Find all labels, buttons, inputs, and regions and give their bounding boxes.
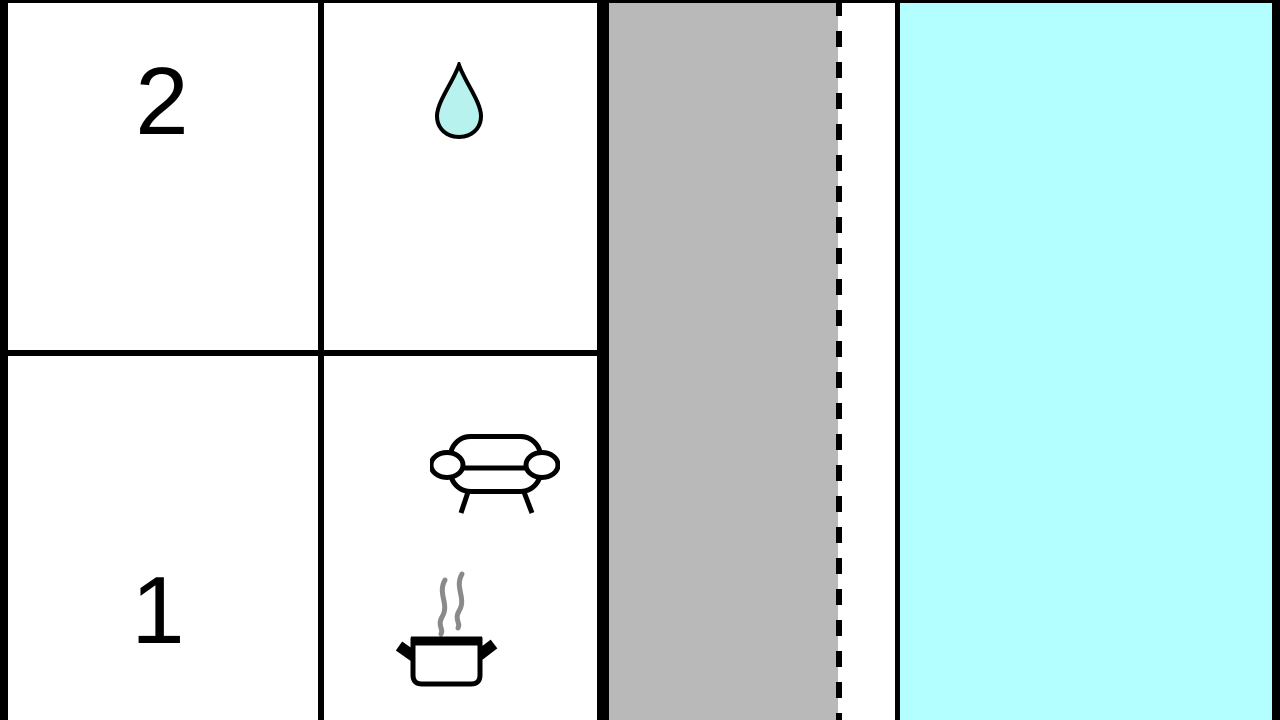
exterior-wall <box>597 0 609 720</box>
wall-left <box>0 0 8 720</box>
wall-right <box>1272 0 1280 720</box>
boundary-dashed-line <box>836 0 842 720</box>
room-divider-horizontal <box>0 350 603 356</box>
sofa-icon <box>430 434 560 514</box>
steam-icon <box>440 574 462 634</box>
cooking-pot-icon <box>393 570 503 690</box>
floor-plan: 2 1 <box>0 0 1280 720</box>
water-drop-icon <box>434 62 484 140</box>
wall-top <box>0 0 1280 3</box>
room-divider-vertical <box>318 0 324 720</box>
room-1-label: 1 <box>131 563 184 659</box>
pool-edge-line <box>895 0 900 720</box>
room-2-label: 2 <box>135 54 188 150</box>
pool-area <box>900 3 1272 720</box>
terrace-strip <box>609 0 838 720</box>
